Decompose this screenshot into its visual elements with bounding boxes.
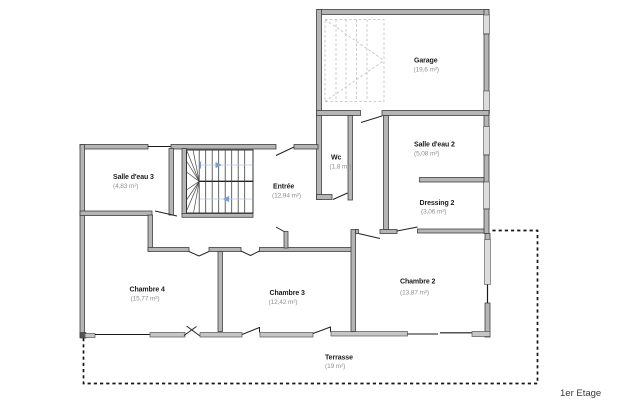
svg-text:(19,6 m²): (19,6 m²) [414,67,439,74]
svg-text:(19 m²): (19 m²) [325,363,345,370]
svg-text:Terrasse: Terrasse [325,355,353,362]
svg-text:(12,94 m²): (12,94 m²) [272,193,301,200]
svg-text:(4,83 m²): (4,83 m²) [113,183,138,190]
svg-text:(3,06 m²): (3,06 m²) [421,209,446,216]
svg-text:Salle d'eau 3: Salle d'eau 3 [113,174,154,181]
svg-text:Chambre 2: Chambre 2 [400,279,435,286]
svg-text:Entrée: Entrée [273,184,294,191]
svg-text:(5,08 m²): (5,08 m²) [414,151,439,158]
svg-text:(15,77 m²): (15,77 m²) [131,296,160,303]
svg-text:(12,42 m²): (12,42 m²) [269,299,298,306]
svg-text:(13,87 m²): (13,87 m²) [400,290,429,297]
svg-text:Garage: Garage [414,58,438,65]
svg-text:1er Etage: 1er Etage [560,388,601,399]
svg-text:Wc: Wc [331,155,342,162]
svg-text:Dressing 2: Dressing 2 [420,200,455,207]
svg-text:Chambre 4: Chambre 4 [130,287,165,294]
svg-text:Chambre 3: Chambre 3 [270,290,305,297]
svg-text:(1,8 m²): (1,8 m²) [330,164,352,171]
svg-text:Salle d'eau 2: Salle d'eau 2 [414,142,455,149]
